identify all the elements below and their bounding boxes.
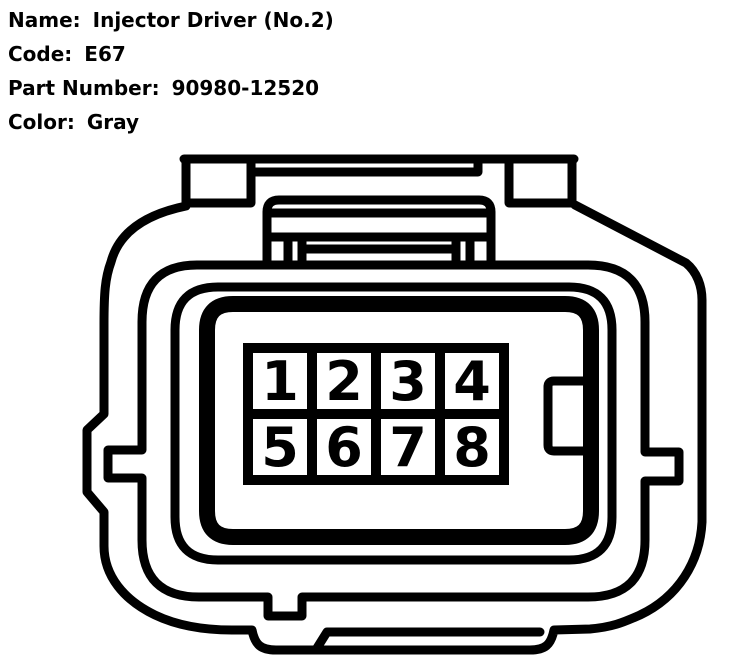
pin-grid: 1 2 3 4 5 6 7 8 [248,348,504,480]
connector-diagram: 1 2 3 4 5 6 7 8 [0,0,736,672]
pin-2: 2 [325,350,363,413]
top-left-tab [186,159,251,203]
connector-pinout-page: Name:Injector Driver (No.2) Code:E67 Par… [0,0,736,672]
pin-5: 5 [261,416,299,479]
pin-6: 6 [325,416,363,479]
top-right-tab [509,159,572,203]
pin-1: 1 [261,350,299,413]
pin-8: 8 [453,416,491,479]
pin-7: 7 [389,416,427,479]
pin-4: 4 [453,350,491,413]
pin-3: 3 [389,350,427,413]
